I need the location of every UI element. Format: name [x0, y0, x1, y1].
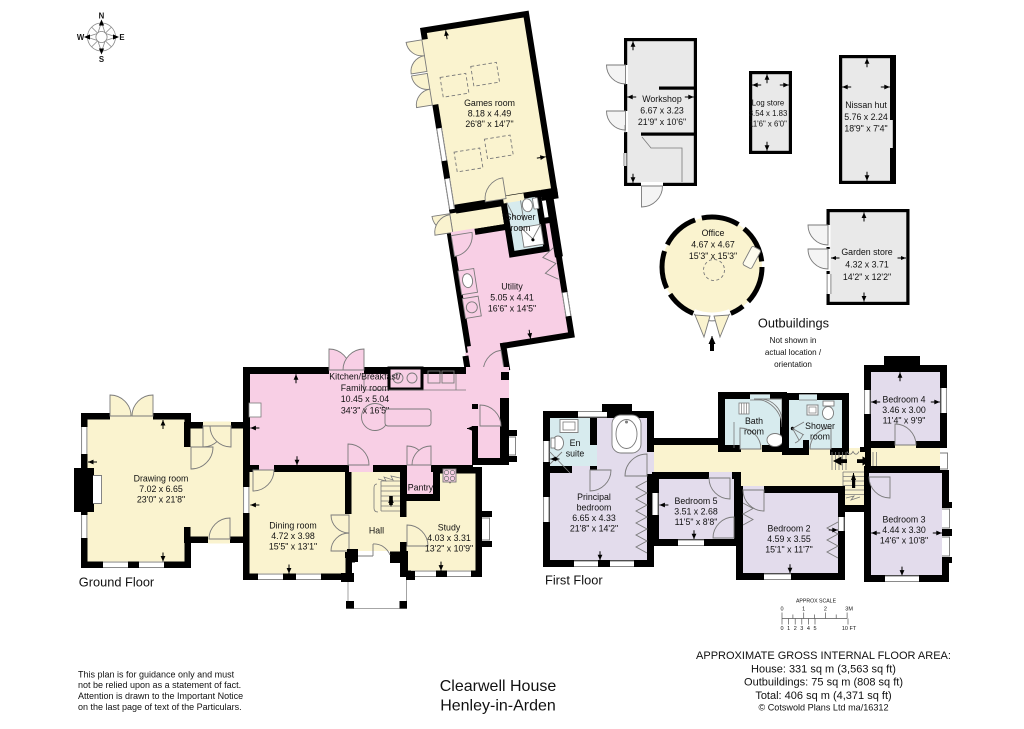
svg-text:House: 331 sq m (3,563 sq ft): House: 331 sq m (3,563 sq ft) — [751, 663, 896, 675]
svg-text:Games room: Games room — [464, 98, 515, 108]
svg-text:Pantry: Pantry — [408, 483, 434, 493]
svg-text:3: 3 — [800, 626, 803, 632]
svg-text:15'5" x 13'1": 15'5" x 13'1" — [269, 542, 317, 552]
svg-text:room: room — [510, 223, 530, 233]
svg-text:Family room: Family room — [341, 383, 389, 393]
svg-text:6.65 x 4.33: 6.65 x 4.33 — [572, 513, 616, 523]
svg-text:Drawing room: Drawing room — [134, 474, 189, 484]
svg-text:14'6" x 10'8": 14'6" x 10'8" — [880, 536, 928, 546]
svg-text:Shower: Shower — [506, 212, 536, 222]
svg-text:Nissan hut: Nissan hut — [845, 100, 887, 110]
svg-text:Principal: Principal — [577, 492, 611, 502]
svg-text:3.54 x 1.83: 3.54 x 1.83 — [749, 109, 788, 118]
svg-text:11'6" x 6'0": 11'6" x 6'0" — [749, 120, 787, 129]
svg-text:1: 1 — [787, 626, 790, 632]
svg-text:Bath: Bath — [745, 416, 763, 426]
svg-text:N: N — [99, 12, 105, 21]
svg-text:2: 2 — [794, 626, 797, 632]
svg-text:2: 2 — [824, 607, 827, 613]
svg-text:Garden store: Garden store — [841, 247, 892, 257]
svg-text:Henley-in-Arden: Henley-in-Arden — [440, 698, 556, 715]
svg-text:3.51 x 2.68: 3.51 x 2.68 — [674, 507, 718, 517]
svg-text:Attention is drawn to the Impo: Attention is drawn to the Important Noti… — [78, 691, 243, 701]
svg-text:Bedroom 2: Bedroom 2 — [767, 524, 810, 534]
svg-text:4.03 x 3.31: 4.03 x 3.31 — [427, 533, 471, 543]
svg-text:5: 5 — [814, 626, 817, 632]
svg-text:10 FT: 10 FT — [842, 626, 857, 632]
svg-text:3.46 x 3.00: 3.46 x 3.00 — [882, 405, 926, 415]
svg-text:Outbuildings: Outbuildings — [758, 316, 829, 331]
svg-text:6.67 x 3.23: 6.67 x 3.23 — [640, 106, 684, 116]
svg-text:15'3" x 15'3": 15'3" x 15'3" — [689, 251, 737, 261]
svg-text:18'9" x 7'4": 18'9" x 7'4" — [844, 124, 887, 134]
svg-text:© Cotswold Plans Ltd ma/16312: © Cotswold Plans Ltd ma/16312 — [758, 703, 888, 713]
svg-text:Total: 406 sq m (4,371 sq ft): Total: 406 sq m (4,371 sq ft) — [755, 690, 891, 702]
svg-text:13'2" x 10'9": 13'2" x 10'9" — [425, 544, 473, 554]
svg-text:not be relied upon as a statem: not be relied upon as a statement of fac… — [78, 680, 241, 690]
svg-text:Hall: Hall — [369, 526, 384, 536]
svg-text:23'0" x 21'8": 23'0" x 21'8" — [137, 495, 185, 505]
svg-text:Kitchen/Breakfast/: Kitchen/Breakfast/ — [329, 372, 401, 382]
svg-text:5.76 x 2.24: 5.76 x 2.24 — [844, 112, 888, 122]
svg-text:8.18 x 4.49: 8.18 x 4.49 — [468, 109, 512, 119]
svg-text:Bedroom 4: Bedroom 4 — [882, 395, 925, 405]
svg-text:room: room — [744, 427, 764, 437]
svg-text:4.44 x 3.30: 4.44 x 3.30 — [882, 525, 926, 535]
svg-text:Ground Floor: Ground Floor — [79, 574, 155, 589]
svg-text:7.02 x 6.65: 7.02 x 6.65 — [139, 484, 183, 494]
svg-text:This plan is for guidance only: This plan is for guidance only and must — [78, 669, 235, 679]
svg-text:Clearwell House: Clearwell House — [440, 678, 557, 695]
svg-text:4: 4 — [807, 626, 810, 632]
svg-text:Outbuildings: 75 sq m (808 sq: Outbuildings: 75 sq m (808 sq ft) — [744, 677, 903, 689]
svg-text:E: E — [119, 33, 124, 42]
svg-text:0: 0 — [780, 607, 783, 613]
svg-text:1: 1 — [802, 607, 805, 613]
svg-text:Office: Office — [702, 228, 725, 238]
svg-text:5.05 x 4.41: 5.05 x 4.41 — [490, 293, 534, 303]
svg-text:21'8" x 14'2": 21'8" x 14'2" — [570, 524, 618, 534]
svg-text:First Floor: First Floor — [545, 573, 603, 588]
svg-text:11'4" x 9'9": 11'4" x 9'9" — [883, 416, 926, 426]
svg-text:21'9" x 10'6": 21'9" x 10'6" — [638, 117, 686, 127]
svg-text:Study: Study — [438, 523, 461, 533]
svg-text:Utility: Utility — [501, 282, 523, 292]
svg-text:10.45 x 5.04: 10.45 x 5.04 — [341, 394, 390, 404]
svg-text:bedroom: bedroom — [577, 503, 612, 513]
svg-text:suite: suite — [566, 449, 585, 459]
svg-text:Bedroom 5: Bedroom 5 — [674, 496, 717, 506]
svg-text:Bedroom 3: Bedroom 3 — [882, 515, 925, 525]
svg-text:on the last page of text of th: on the last page of text of the Particul… — [78, 702, 242, 712]
svg-text:4.67 x 4.67: 4.67 x 4.67 — [691, 240, 735, 250]
svg-text:actual location /: actual location / — [765, 348, 822, 357]
svg-text:4.72 x 3.98: 4.72 x 3.98 — [271, 531, 315, 541]
svg-text:4.59 x 3.55: 4.59 x 3.55 — [767, 534, 811, 544]
svg-text:Workshop: Workshop — [642, 94, 682, 104]
svg-text:W: W — [77, 33, 85, 42]
svg-text:0: 0 — [780, 626, 783, 632]
svg-text:Shower: Shower — [805, 421, 835, 431]
svg-text:15'1" x 11'7": 15'1" x 11'7" — [765, 545, 813, 555]
svg-text:APPROX SCALE: APPROX SCALE — [796, 598, 837, 604]
svg-text:orientation: orientation — [774, 360, 812, 369]
svg-text:S: S — [99, 55, 104, 64]
svg-text:Dining room: Dining room — [269, 521, 316, 531]
svg-text:Not shown in: Not shown in — [770, 336, 817, 345]
svg-text:APPROXIMATE GROSS INTERNAL FLO: APPROXIMATE GROSS INTERNAL FLOOR AREA: — [696, 650, 951, 662]
svg-text:16'6" x 14'5": 16'6" x 14'5" — [488, 304, 536, 314]
svg-text:14'2" x 12'2": 14'2" x 12'2" — [843, 272, 891, 282]
svg-text:11'5" x 8'8": 11'5" x 8'8" — [675, 517, 718, 527]
svg-text:Log store: Log store — [752, 99, 785, 108]
svg-text:4.32 x 3.71: 4.32 x 3.71 — [845, 260, 889, 270]
svg-text:26'8" x 14'7": 26'8" x 14'7" — [465, 119, 513, 129]
svg-text:En: En — [570, 438, 581, 448]
svg-text:3M: 3M — [845, 607, 853, 613]
svg-text:34'3" x 16'5": 34'3" x 16'5" — [341, 405, 389, 415]
svg-text:room: room — [810, 432, 830, 442]
